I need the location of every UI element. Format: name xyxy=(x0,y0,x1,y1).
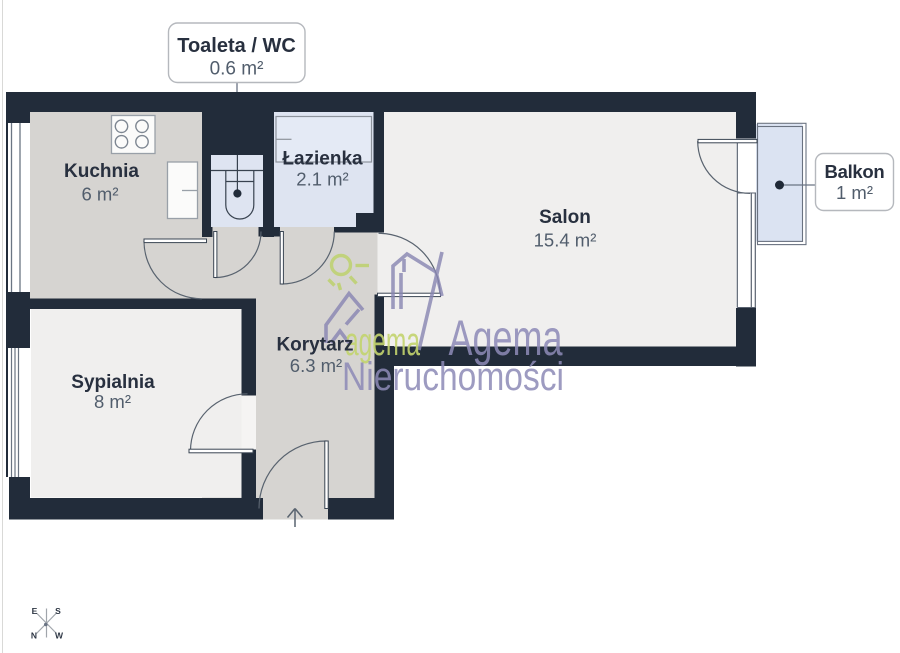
svg-text:N: N xyxy=(31,631,37,641)
svg-text:Nieruchomości: Nieruchomości xyxy=(342,355,564,399)
svg-text:15.4 m²: 15.4 m² xyxy=(534,230,597,251)
svg-text:Balkon: Balkon xyxy=(825,161,885,182)
svg-text:Kuchnia: Kuchnia xyxy=(64,161,139,182)
svg-text:E: E xyxy=(32,606,38,616)
svg-text:Korytarz: Korytarz xyxy=(276,335,353,356)
svg-text:Salon: Salon xyxy=(539,207,591,228)
svg-text:0.6 m²: 0.6 m² xyxy=(210,59,264,80)
svg-text:W: W xyxy=(55,631,64,641)
svg-text:S: S xyxy=(55,606,61,616)
svg-text:6 m²: 6 m² xyxy=(82,184,119,205)
svg-text:Toaleta / WC: Toaleta / WC xyxy=(177,35,296,57)
svg-text:1 m²: 1 m² xyxy=(836,182,873,203)
svg-text:6.3 m²: 6.3 m² xyxy=(290,355,342,376)
svg-text:8 m²: 8 m² xyxy=(94,391,131,412)
svg-text:2.1 m²: 2.1 m² xyxy=(296,169,348,190)
svg-text:Łazienka: Łazienka xyxy=(282,149,363,170)
svg-text:Sypialnia: Sypialnia xyxy=(71,372,155,393)
